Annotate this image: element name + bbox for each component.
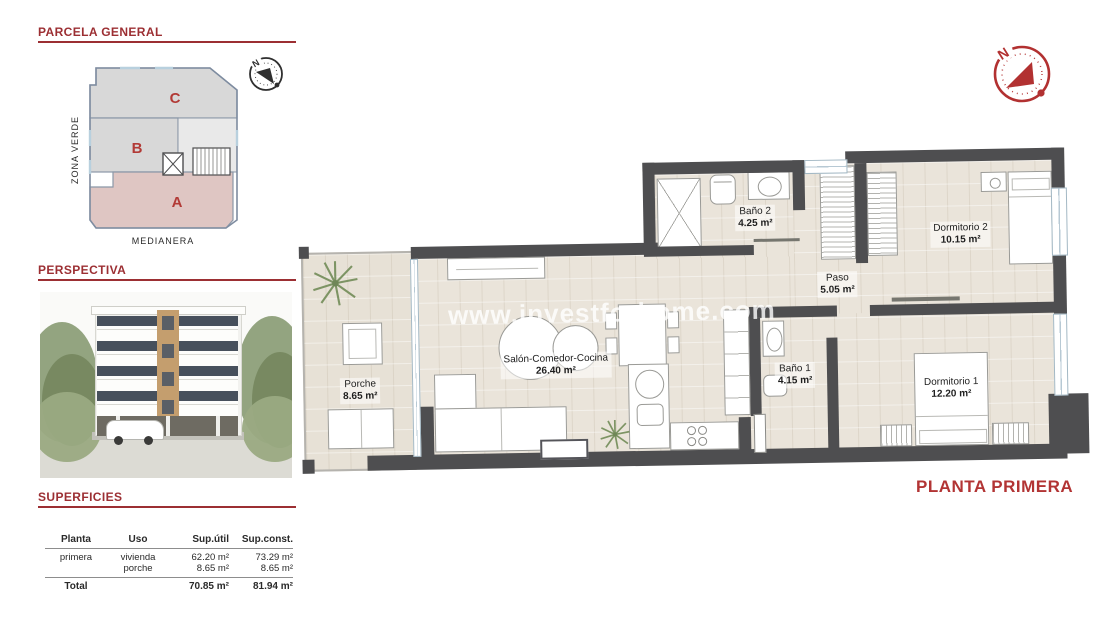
room-name: Salón-Comedor-Cocina <box>503 353 608 366</box>
small-compass-icon: N <box>250 56 282 90</box>
car-wheel <box>114 436 123 445</box>
wall <box>749 318 762 416</box>
wall <box>792 160 805 210</box>
pillow <box>919 429 987 444</box>
sideboard <box>447 257 545 281</box>
room-label-dorm1: Dormitorio 1 12.20 m² <box>921 375 982 402</box>
stairs-shape <box>193 148 230 175</box>
kitchen-round-sink <box>635 370 665 400</box>
room-label-salon: Salón-Comedor-Cocina 26.40 m² <box>500 351 611 379</box>
radiator <box>880 424 912 447</box>
pillar <box>166 416 170 436</box>
wall-inset <box>540 439 588 460</box>
room-area: 8.65 m² <box>343 391 378 404</box>
total-label: Total <box>45 581 107 592</box>
hall-closet <box>819 165 856 260</box>
sideboard-line <box>456 268 538 270</box>
room-label-porche: Porche 8.65 m² <box>340 378 381 405</box>
zone-a-shape <box>90 172 233 228</box>
wall <box>299 247 309 259</box>
table-header-row: Planta Uso Sup.útil Sup.const. <box>45 534 293 545</box>
zone-a-label: A <box>172 194 183 211</box>
bed-fold-line <box>1009 196 1051 198</box>
wall <box>1048 393 1089 454</box>
bathroom-sink <box>747 171 789 200</box>
window <box>1053 314 1068 396</box>
porche-bench <box>328 408 395 449</box>
building-rendering <box>40 292 292 478</box>
bathroom-sink <box>762 320 785 356</box>
cell-const: 73.29 m² <box>229 552 293 563</box>
total-const: 81.94 m² <box>229 581 293 592</box>
room-name: Dormitorio 2 <box>933 222 988 234</box>
table-total-row: Total 70.85 m² 81.94 m² <box>45 581 293 592</box>
radiator <box>992 422 1029 445</box>
section-underline <box>38 279 296 281</box>
building-right-facade <box>179 316 238 416</box>
shower <box>657 178 702 249</box>
kitchen-counter <box>628 363 670 449</box>
sofa-cushion-line <box>501 408 503 450</box>
col-sup-util: Sup.útil <box>169 534 229 545</box>
floor-plan: Porche 8.65 m² Salón-Comedor-Cocina 26.4… <box>297 143 1093 489</box>
kitchen-sink <box>637 404 664 426</box>
car-wheel <box>144 436 153 445</box>
site-plan: C B A ZONA VERDE MEDIANERA N <box>60 50 300 250</box>
cell-util: 8.65 m² <box>169 563 229 574</box>
room-name: Porche <box>344 379 376 391</box>
cell-util: 62.20 m² <box>169 552 229 563</box>
building-left-facade <box>97 316 157 416</box>
zona-verde-label: ZONA VERDE <box>70 116 80 184</box>
dining-chair <box>667 336 679 353</box>
site-plan-drawing: C B A ZONA VERDE MEDIANERA N <box>60 50 300 250</box>
pillow <box>1012 178 1050 191</box>
window <box>1051 187 1068 255</box>
palm-plant <box>309 256 362 311</box>
perspectiva-title: PERSPECTIVA <box>38 263 126 277</box>
room-area: 4.15 m² <box>778 375 813 388</box>
room-name: Paso <box>826 272 849 283</box>
room-area: 12.20 m² <box>924 388 979 401</box>
kitchen-counter-bottom <box>670 421 739 450</box>
door-leaf <box>754 414 767 453</box>
room-label-bano1: Baño 1 4.15 m² <box>775 362 816 389</box>
room-label-dorm2: Dormitorio 2 10.15 m² <box>930 221 991 248</box>
room-area: 5.05 m² <box>820 284 855 297</box>
wall <box>826 338 839 450</box>
bed-single <box>1008 171 1054 265</box>
table-row: porche 8.65 m² 8.65 m² <box>45 563 293 574</box>
room-area: 26.40 m² <box>504 365 609 379</box>
cell-uso: porche <box>107 563 169 574</box>
room-name: Dormitorio 1 <box>924 376 979 388</box>
room-area: 4.25 m² <box>738 218 773 231</box>
table-row: primera vivienda 62.20 m² 73.29 m² <box>45 552 293 563</box>
lamp <box>990 178 1001 189</box>
parcela-title: PARCELA GENERAL <box>38 25 163 39</box>
table-inner <box>348 329 377 359</box>
bed-fold-line <box>916 415 988 417</box>
entrance-door <box>804 159 847 174</box>
palm-plant-small <box>597 417 634 452</box>
section-underline <box>38 506 296 508</box>
cell-planta: primera <box>45 552 107 563</box>
stove <box>685 424 709 448</box>
sink-basin <box>766 327 782 351</box>
total-util: 70.85 m² <box>169 581 229 592</box>
sink-basin <box>758 176 782 196</box>
wall <box>644 245 754 257</box>
wall <box>302 460 314 474</box>
superficies-table: Planta Uso Sup.útil Sup.const. primera v… <box>45 534 293 592</box>
tan-column-windows <box>162 316 174 428</box>
north-compass-icon: N <box>988 40 1056 108</box>
nightstand <box>981 172 1007 192</box>
porche-table <box>342 322 383 365</box>
medianera-label: MEDIANERA <box>132 236 195 246</box>
room-name: Baño 1 <box>779 363 811 375</box>
wall <box>1051 148 1065 188</box>
bench-divider <box>361 410 363 448</box>
superficies-title: SUPERFICIES <box>38 490 122 504</box>
pillar <box>216 416 220 436</box>
cell-const: 8.65 m² <box>229 563 293 574</box>
table-rule <box>45 577 293 578</box>
toilet <box>710 174 737 204</box>
wall <box>642 163 656 255</box>
col-uso: Uso <box>107 534 169 545</box>
col-sup-const: Sup.const. <box>229 534 293 545</box>
room-label-bano2: Baño 2 4.25 m² <box>735 205 776 232</box>
col-planta: Planta <box>45 534 107 545</box>
plan-title: PLANTA PRIMERA <box>916 477 1073 497</box>
plan-sheet: { "parcela": { "title": "PARCELA GENERAL… <box>0 0 1110 626</box>
zone-b-label: B <box>132 140 143 157</box>
table-rule <box>45 548 293 549</box>
room-label-paso: Paso 5.05 m² <box>817 271 858 298</box>
wall <box>854 163 868 263</box>
room-name: Baño 2 <box>739 206 771 218</box>
wardrobe <box>867 171 898 256</box>
zone-c-label: C <box>170 90 181 107</box>
toilet-tank-line <box>714 181 732 182</box>
wall <box>739 417 752 451</box>
zone-c-shape <box>90 68 237 118</box>
section-underline <box>38 41 296 43</box>
cell-uso: vivienda <box>107 552 169 563</box>
room-area: 10.15 m² <box>933 234 988 247</box>
